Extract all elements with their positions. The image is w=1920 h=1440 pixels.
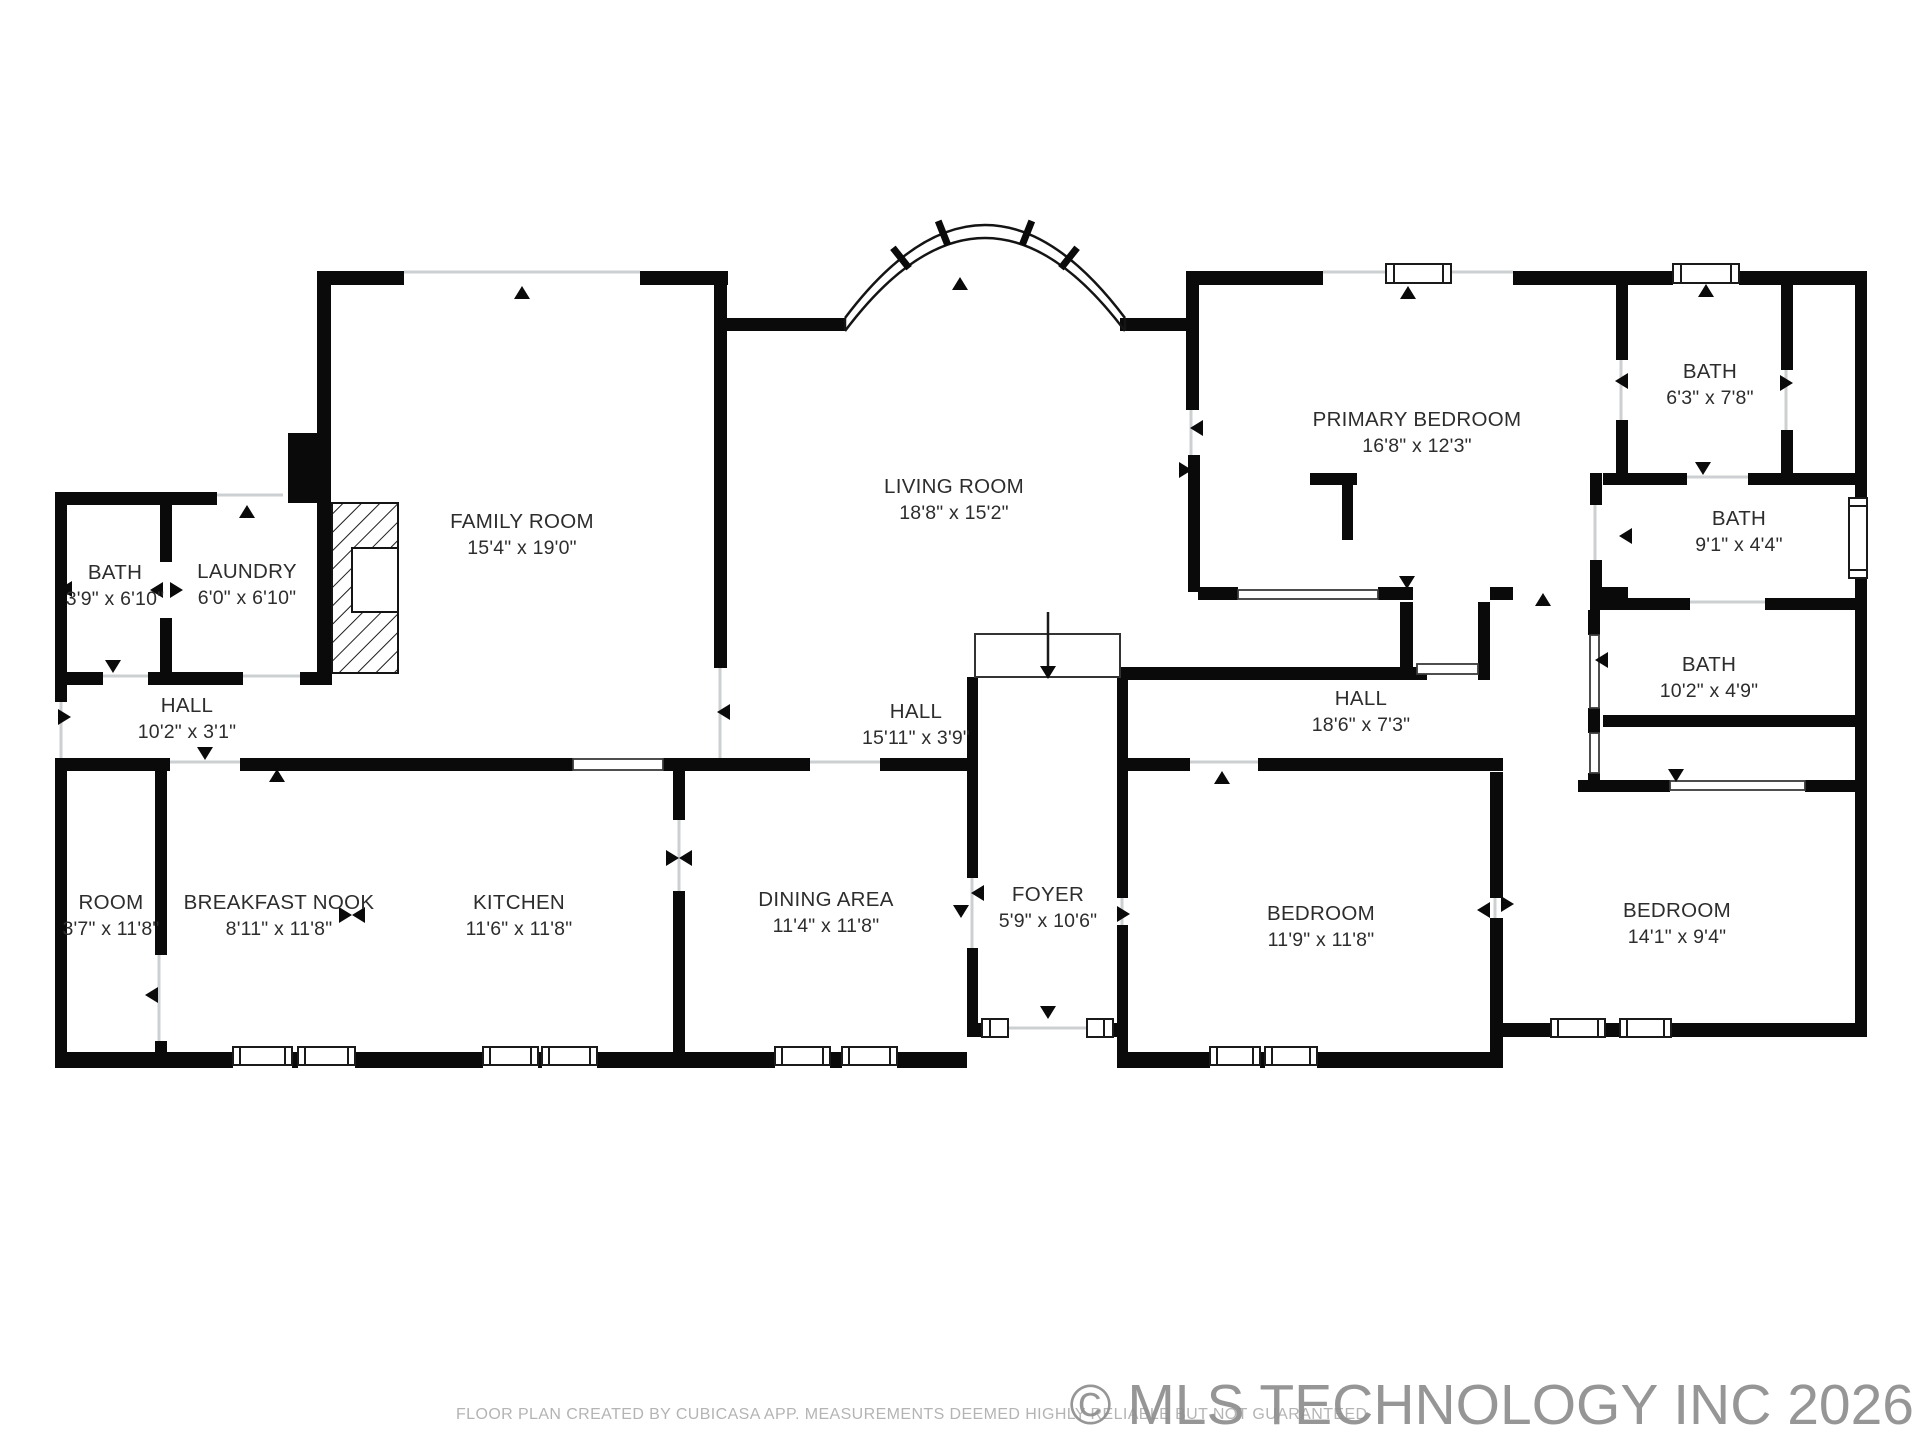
room-label-foyer: FOYER5'9" x 10'6": [999, 881, 1098, 935]
room-name: HALL: [1312, 685, 1411, 712]
room-name: BATH: [1666, 358, 1753, 385]
room-name: LIVING ROOM: [884, 473, 1024, 500]
room-name: DINING AREA: [758, 886, 893, 913]
room-label-primary-bedroom: PRIMARY BEDROOM16'8" x 12'3": [1313, 406, 1522, 460]
room-name: BATH: [1695, 505, 1782, 532]
room-name: KITCHEN: [466, 889, 573, 916]
room-dimensions: 10'2" x 3'1": [138, 719, 237, 746]
room-label-room: ROOM3'7" x 11'8": [62, 889, 159, 943]
room-name: BATH: [1660, 651, 1759, 678]
room-label-bath-4: BATH3'9" x 6'10": [66, 559, 165, 613]
room-name: PRIMARY BEDROOM: [1313, 406, 1522, 433]
room-name: FAMILY ROOM: [450, 508, 594, 535]
room-name: BREAKFAST NOOK: [184, 889, 375, 916]
room-dimensions: 6'3" x 7'8": [1666, 385, 1753, 412]
room-dimensions: 11'9" x 11'8": [1267, 927, 1375, 954]
room-label-hall-2: HALL15'11" x 3'9": [862, 698, 970, 752]
room-dimensions: 18'6" x 7'3": [1312, 712, 1411, 739]
room-label-bath-1: BATH6'3" x 7'8": [1666, 358, 1753, 412]
room-dimensions: 6'0" x 6'10": [197, 585, 297, 612]
room-label-laundry: LAUNDRY6'0" x 6'10": [197, 558, 297, 612]
room-labels: FAMILY ROOM15'4" x 19'0"LIVING ROOM18'8"…: [0, 0, 1920, 1440]
room-dimensions: 18'8" x 15'2": [884, 500, 1024, 527]
room-name: FOYER: [999, 881, 1098, 908]
room-label-breakfast-nook: BREAKFAST NOOK8'11" x 11'8": [184, 889, 375, 943]
floorplan-page: FAMILY ROOM15'4" x 19'0"LIVING ROOM18'8"…: [0, 0, 1920, 1440]
room-dimensions: 9'1" x 4'4": [1695, 532, 1782, 559]
room-dimensions: 16'8" x 12'3": [1313, 433, 1522, 460]
room-label-dining-area: DINING AREA11'4" x 11'8": [758, 886, 893, 940]
room-name: BEDROOM: [1267, 900, 1375, 927]
room-label-hall-3: HALL18'6" x 7'3": [1312, 685, 1411, 739]
room-name: HALL: [138, 692, 237, 719]
room-name: ROOM: [62, 889, 159, 916]
room-dimensions: 3'7" x 11'8": [62, 916, 159, 943]
room-dimensions: 5'9" x 10'6": [999, 908, 1098, 935]
room-label-bath-2: BATH9'1" x 4'4": [1695, 505, 1782, 559]
room-dimensions: 8'11" x 11'8": [184, 916, 375, 943]
room-dimensions: 14'1" x 9'4": [1623, 924, 1731, 951]
room-label-kitchen: KITCHEN11'6" x 11'8": [466, 889, 573, 943]
room-name: BEDROOM: [1623, 897, 1731, 924]
room-name: BATH: [66, 559, 165, 586]
room-dimensions: 15'4" x 19'0": [450, 535, 594, 562]
room-label-hall-1: HALL10'2" x 3'1": [138, 692, 237, 746]
room-label-bedroom-1: BEDROOM11'9" x 11'8": [1267, 900, 1375, 954]
room-label-bedroom-2: BEDROOM14'1" x 9'4": [1623, 897, 1731, 951]
room-label-family-room: FAMILY ROOM15'4" x 19'0": [450, 508, 594, 562]
room-dimensions: 11'6" x 11'8": [466, 916, 573, 943]
room-name: HALL: [862, 698, 970, 725]
room-label-bath-3: BATH10'2" x 4'9": [1660, 651, 1759, 705]
room-dimensions: 11'4" x 11'8": [758, 913, 893, 940]
room-dimensions: 15'11" x 3'9": [862, 725, 970, 752]
room-name: LAUNDRY: [197, 558, 297, 585]
room-dimensions: 10'2" x 4'9": [1660, 678, 1759, 705]
watermark-text: © MLS TECHNOLOGY INC 2026: [1069, 1372, 1914, 1438]
room-dimensions: 3'9" x 6'10": [66, 586, 165, 613]
room-label-living-room: LIVING ROOM18'8" x 15'2": [884, 473, 1024, 527]
